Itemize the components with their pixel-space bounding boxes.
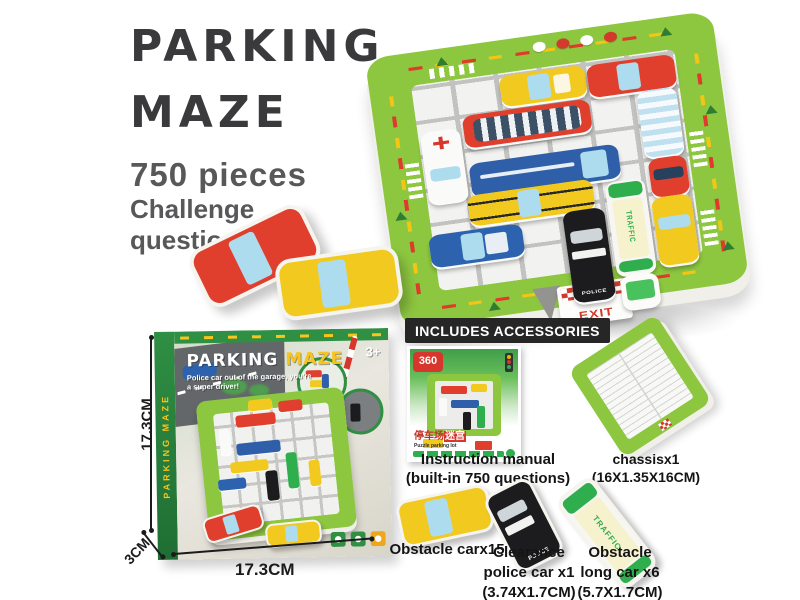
green-mini-car-piece bbox=[620, 272, 662, 310]
obstacle-car-thumbnail bbox=[394, 483, 496, 549]
red-mini-car-piece bbox=[647, 154, 690, 198]
product-image: PARKING MAZE 750 pieces Challenge questi… bbox=[0, 0, 800, 600]
360-badge: 360 bbox=[413, 352, 443, 372]
pieces-count-text: 750 pieces bbox=[130, 156, 410, 194]
box-front: PARKING MAZE Police car out of the garag… bbox=[174, 328, 392, 560]
box-spine-text: PARKING MAZE bbox=[160, 393, 172, 498]
manual-chinese-title: 停车场迷宫 bbox=[414, 431, 466, 442]
long-caption-line3: (5.7X1.7CM) bbox=[567, 583, 673, 600]
chassis-checker-icon bbox=[658, 418, 672, 431]
box-subtitle: Police car out of the garage, you're a s… bbox=[187, 371, 312, 391]
tree-icon bbox=[659, 26, 672, 36]
manual-caption: Instruction manual (built-in 750 questio… bbox=[393, 450, 583, 488]
board-green-frame: EXIT TRAFFIC POLICE bbox=[365, 10, 750, 329]
manual-caption-line2: (built-in 750 questions) bbox=[393, 469, 583, 488]
manual-caption-line1: Instruction manual bbox=[393, 450, 583, 469]
long-car-caption: Obstacle long car x6 (5.7X1.7CM) bbox=[567, 543, 673, 600]
long-caption-line2: long car x6 bbox=[567, 563, 673, 583]
height-dimension-label: 17.3CM bbox=[139, 390, 156, 460]
tree-icon bbox=[488, 301, 501, 311]
tree-icon bbox=[705, 104, 718, 114]
manual-maze-art bbox=[427, 374, 501, 436]
long-caption-line1: Obstacle bbox=[567, 543, 673, 563]
chassis-caption: chassisx1 (16X1.35X16CM) bbox=[580, 450, 712, 486]
product-title-line1: PARKING bbox=[130, 14, 410, 80]
product-title-line2: MAZE bbox=[130, 80, 410, 146]
manual-cn-highlight: 迷宫 bbox=[444, 431, 466, 442]
box-title: PARKING MAZE bbox=[186, 349, 343, 372]
game-board: EXIT TRAFFIC POLICE bbox=[365, 10, 750, 329]
manual-cover: 360 停车场迷宫 Puzzle parking lot bbox=[410, 349, 518, 459]
accessories-header: INCLUDES ACCESSORIES bbox=[405, 318, 610, 343]
box-title-word1: PARKING bbox=[186, 350, 285, 372]
box-title-word2: MAZE bbox=[285, 349, 343, 370]
width-dimension-label: 17.3CM bbox=[235, 560, 295, 580]
tree-icon bbox=[722, 240, 735, 250]
chassis-caption-line1: chassisx1 bbox=[580, 450, 712, 468]
box-subtitle-line2: a super driver! bbox=[187, 380, 312, 391]
instruction-manual-thumbnail: 360 停车场迷宫 Puzzle parking lot bbox=[407, 346, 521, 462]
tree-icon bbox=[435, 56, 448, 66]
police-label: POLICE bbox=[573, 287, 615, 297]
age-badge: 3+ bbox=[365, 344, 380, 359]
traffic-light-icon bbox=[505, 353, 513, 372]
product-box: PARKING MAZE PARKING MAZE Police car out… bbox=[154, 328, 392, 560]
chassis-caption-line2: (16X1.35X16CM) bbox=[580, 468, 712, 486]
manual-cn-text: 停车场 bbox=[414, 431, 444, 442]
manual-english-subtitle: Puzzle parking lot bbox=[414, 443, 457, 449]
